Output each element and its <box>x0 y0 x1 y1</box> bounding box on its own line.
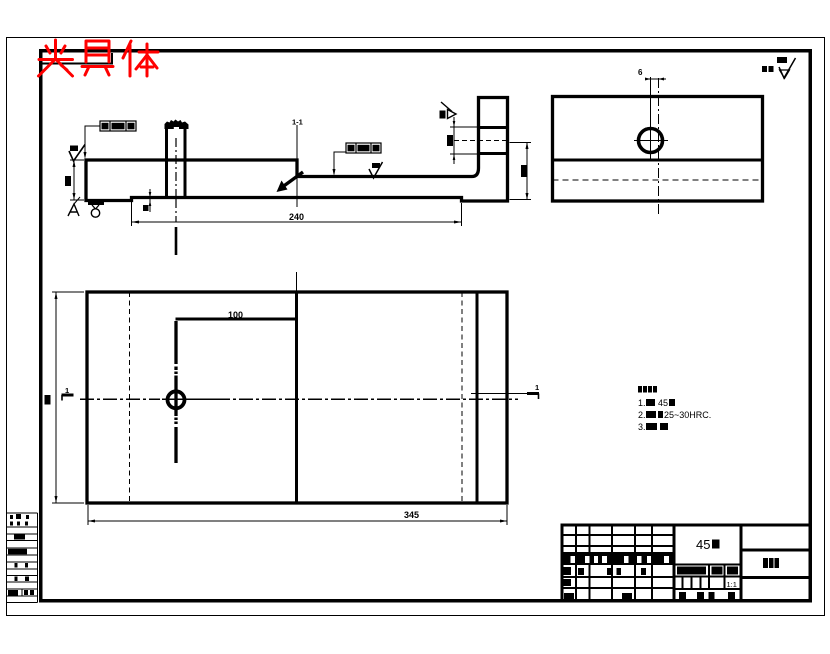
svg-text:100: 100 <box>228 310 243 320</box>
svg-text:3.: 3. <box>638 422 646 432</box>
svg-text:45: 45 <box>658 398 668 408</box>
svg-text:1.: 1. <box>638 398 646 408</box>
svg-text:25~30HRC.: 25~30HRC. <box>664 410 711 420</box>
svg-text:1:1: 1:1 <box>727 580 737 589</box>
svg-text:1: 1 <box>535 383 539 392</box>
svg-text:6: 6 <box>638 68 643 77</box>
svg-text:240: 240 <box>289 212 304 222</box>
svg-text:1: 1 <box>65 386 69 395</box>
svg-text:2.: 2. <box>638 410 646 420</box>
svg-text:45: 45 <box>696 537 710 552</box>
svg-text:345: 345 <box>404 510 419 520</box>
